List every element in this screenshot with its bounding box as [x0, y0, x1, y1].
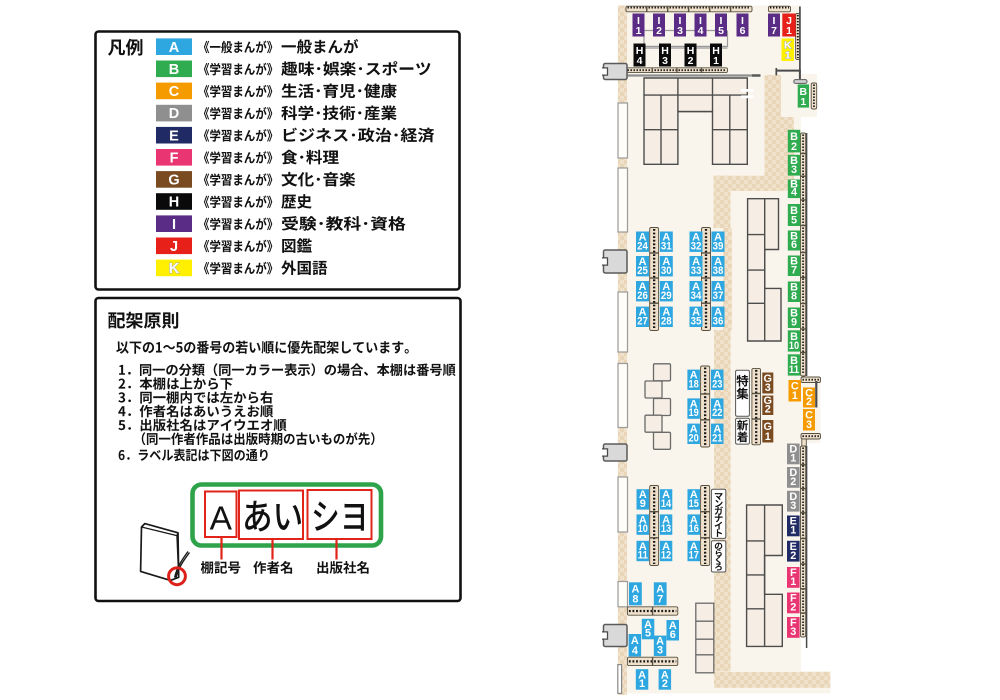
svg-text:2: 2	[662, 678, 668, 690]
svg-text:3: 3	[790, 500, 796, 512]
svg-text:K: K	[169, 261, 180, 277]
svg-text:30: 30	[661, 265, 672, 277]
svg-text:9: 9	[791, 316, 797, 328]
svg-text:4: 4	[698, 25, 704, 37]
svg-text:15: 15	[689, 498, 699, 510]
svg-text:G: G	[168, 173, 179, 189]
svg-text:22: 22	[712, 407, 722, 419]
svg-text:31: 31	[661, 240, 672, 252]
svg-text:34: 34	[691, 290, 702, 302]
svg-text:28: 28	[661, 315, 672, 327]
svg-text:4: 4	[637, 55, 643, 67]
svg-text:18: 18	[689, 378, 699, 390]
svg-text:5: 5	[718, 25, 724, 37]
svg-text:3: 3	[677, 25, 683, 37]
svg-text:B: B	[169, 62, 179, 78]
svg-text:1: 1	[639, 678, 645, 690]
svg-text:2: 2	[688, 55, 694, 67]
svg-text:H: H	[169, 195, 179, 211]
svg-text:I: I	[172, 217, 176, 233]
svg-text:10: 10	[789, 340, 799, 352]
svg-text:1: 1	[790, 576, 796, 588]
svg-text:5: 5	[645, 628, 651, 640]
svg-text:1: 1	[765, 431, 771, 443]
svg-text:D: D	[169, 106, 179, 122]
svg-text:7: 7	[791, 264, 797, 276]
svg-text:17: 17	[689, 550, 699, 562]
svg-text:1: 1	[713, 55, 719, 67]
svg-text:1: 1	[790, 453, 796, 465]
svg-text:23: 23	[712, 378, 722, 390]
svg-text:24: 24	[637, 240, 648, 252]
svg-text:2: 2	[765, 403, 771, 415]
svg-text:2: 2	[656, 25, 662, 37]
svg-text:16: 16	[689, 523, 699, 535]
svg-text:C: C	[169, 84, 180, 100]
svg-text:A: A	[169, 40, 180, 56]
svg-text:3: 3	[662, 55, 668, 67]
svg-text:2: 2	[790, 550, 796, 562]
svg-text:35: 35	[691, 315, 702, 327]
svg-text:26: 26	[637, 290, 648, 302]
svg-text:29: 29	[661, 290, 672, 302]
svg-text:11: 11	[789, 364, 799, 376]
svg-text:37: 37	[713, 290, 724, 302]
svg-text:2: 2	[806, 396, 812, 408]
svg-text:3: 3	[657, 645, 663, 657]
svg-text:11: 11	[638, 550, 648, 562]
svg-text:32: 32	[691, 240, 702, 252]
svg-text:6: 6	[670, 629, 676, 641]
svg-text:4: 4	[791, 187, 797, 199]
svg-text:4: 4	[632, 645, 638, 657]
svg-text:7: 7	[771, 25, 777, 37]
svg-text:1: 1	[800, 96, 806, 108]
svg-text:19: 19	[689, 407, 699, 419]
svg-text:J: J	[170, 239, 178, 255]
svg-text:1: 1	[792, 390, 798, 402]
svg-text:27: 27	[637, 315, 648, 327]
svg-text:6: 6	[791, 239, 797, 251]
svg-text:E: E	[169, 128, 179, 144]
svg-text:3: 3	[790, 626, 796, 638]
svg-text:5: 5	[791, 214, 797, 226]
svg-text:9: 9	[640, 498, 646, 510]
svg-text:33: 33	[691, 265, 702, 277]
svg-text:6: 6	[740, 25, 746, 37]
svg-text:1: 1	[786, 25, 792, 37]
svg-text:7: 7	[657, 594, 663, 606]
svg-text:36: 36	[713, 315, 724, 327]
svg-text:1: 1	[636, 25, 642, 37]
svg-text:38: 38	[713, 265, 724, 277]
svg-text:3: 3	[791, 164, 797, 176]
svg-text:12: 12	[661, 550, 671, 562]
svg-text:3: 3	[765, 382, 771, 394]
svg-text:2: 2	[791, 141, 797, 153]
svg-text:13: 13	[661, 523, 671, 535]
svg-text:1: 1	[790, 525, 796, 537]
svg-text:21: 21	[712, 432, 722, 444]
svg-text:2: 2	[790, 602, 796, 614]
svg-text:39: 39	[713, 240, 724, 252]
svg-text:F: F	[170, 150, 179, 166]
svg-text:25: 25	[637, 265, 648, 277]
svg-text:8: 8	[632, 594, 638, 606]
svg-text:3: 3	[806, 419, 812, 431]
svg-text:2: 2	[790, 476, 796, 488]
svg-text:8: 8	[791, 290, 797, 302]
svg-text:10: 10	[638, 523, 648, 535]
svg-text:1: 1	[785, 49, 791, 61]
svg-text:14: 14	[661, 498, 671, 510]
svg-text:20: 20	[689, 432, 699, 444]
